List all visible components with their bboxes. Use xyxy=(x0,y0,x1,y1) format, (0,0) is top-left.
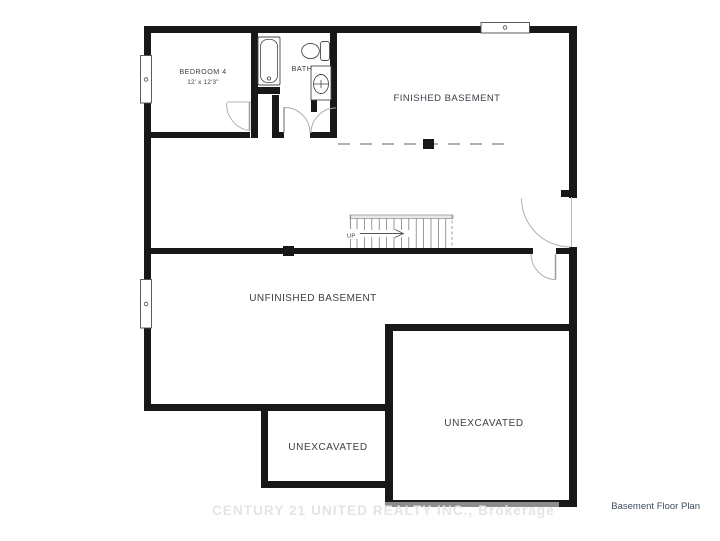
sink-icon xyxy=(311,66,331,100)
post-marker-beam xyxy=(423,139,434,149)
bathtub-icon xyxy=(258,37,280,85)
bedroom-door-icon xyxy=(226,102,251,131)
bedroom4-label: BEDROOM 4 xyxy=(179,67,226,76)
bath-label: BATH xyxy=(292,64,313,73)
staircase: UP xyxy=(344,215,453,248)
unfinished-basement-label: UNFINISHED BASEMENT xyxy=(249,293,376,304)
floor-plan-page: UP BEDROOM 4 12' x 12'3" BATH FINISHED B… xyxy=(0,0,720,541)
stairs-up-label: UP xyxy=(347,234,355,240)
bedroom4-dimensions: 12' x 12'3" xyxy=(187,79,218,86)
exterior-walls xyxy=(144,26,577,507)
floor-plan-drawing: UP BEDROOM 4 12' x 12'3" BATH FINISHED B… xyxy=(0,0,720,541)
post-marker-divider xyxy=(283,246,294,256)
unexcavated-small-label: UNEXCAVATED xyxy=(288,442,367,453)
brokerage-watermark: CENTURY 21 UNITED REALTY INC., Brokerage xyxy=(208,502,559,519)
basement-divider-door-icon xyxy=(531,254,556,280)
unexcavated-large-label: UNEXCAVATED xyxy=(444,418,523,429)
bath-door-icon xyxy=(284,107,310,133)
plan-title: Basement Floor Plan xyxy=(600,501,700,512)
toilet-icon xyxy=(302,42,330,61)
window-icon-top xyxy=(481,23,530,34)
right-wall-opening-door-icon xyxy=(522,197,572,247)
window-icon-unfinished xyxy=(141,280,152,329)
finished-basement-label: FINISHED BASEMENT xyxy=(394,93,501,104)
window-icon-bedroom xyxy=(141,56,152,104)
